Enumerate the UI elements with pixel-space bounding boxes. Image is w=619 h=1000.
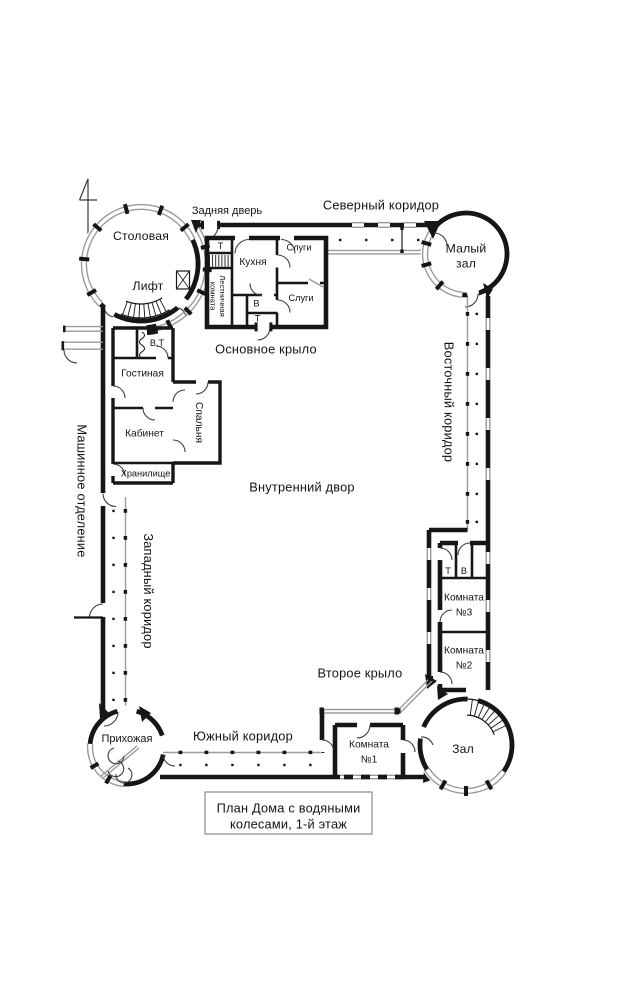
label-wc: В.Т bbox=[150, 338, 165, 348]
label-stair-room-1: Лестничная bbox=[218, 275, 227, 316]
label-room2-1: Комната bbox=[444, 646, 484, 657]
label-hall: Зал bbox=[452, 742, 474, 756]
east-wing-block: Т В Комната №3 Комната №2 bbox=[425, 530, 489, 700]
label-toilet-2: Т bbox=[255, 314, 261, 324]
west-corridor: Западный коридор bbox=[112, 497, 156, 706]
label-office: Кабинет bbox=[125, 428, 164, 440]
label-stair-room-2: комната bbox=[209, 282, 218, 311]
label-dining-room: Столовая bbox=[113, 229, 169, 243]
plan-title-line1: План Дома с водяными bbox=[217, 801, 361, 816]
south-corridor: Южный коридор bbox=[160, 729, 434, 784]
label-servants-top: Слуги bbox=[286, 243, 311, 253]
north-corridor: Задняя дверь Северный коридор bbox=[192, 198, 439, 254]
label-room3-1: Комната bbox=[444, 593, 484, 604]
label-living-room: Гостиная bbox=[121, 369, 164, 380]
rotunda-dining: Столовая Лифт bbox=[79, 204, 212, 332]
main-wing-block: Т Лестничная комната Кухня Слуги Слуги В… bbox=[207, 234, 326, 341]
rotunda-entry: Прихожая bbox=[88, 703, 175, 786]
label-room2-2: №2 bbox=[456, 661, 473, 672]
label-toilet-1: Т bbox=[218, 241, 224, 251]
plan-title-line2: колесами, 1-й этаж bbox=[230, 817, 347, 832]
label-west-corridor: Западный коридор bbox=[141, 533, 156, 648]
floor-plan: Столовая Лифт Задняя дверь Северный кори… bbox=[0, 0, 619, 1000]
label-east-corridor: Восточный коридор bbox=[442, 342, 457, 462]
label-servants-bottom: Слуги bbox=[288, 293, 313, 303]
label-north-corridor: Северный коридор bbox=[323, 198, 439, 213]
label-east-toilet: Т bbox=[445, 566, 451, 576]
curved-stair-hall bbox=[467, 699, 509, 735]
rotunda-small-hall: Малый зал bbox=[422, 213, 507, 307]
rotunda-hall: Зал bbox=[420, 699, 512, 796]
label-room3-2: №3 bbox=[456, 608, 473, 619]
label-lift: Лифт bbox=[133, 279, 164, 293]
label-room1-2: №1 bbox=[361, 755, 378, 766]
title-box: План Дома с водяными колесами, 1-й этаж bbox=[205, 792, 372, 834]
label-small-hall-2: зал bbox=[456, 257, 476, 271]
lift-shaft bbox=[177, 271, 190, 289]
floor-plan-page: Столовая Лифт Задняя дверь Северный кори… bbox=[0, 0, 619, 1000]
room-1: Комната №1 bbox=[335, 721, 415, 778]
stair-hatch bbox=[210, 255, 229, 267]
label-courtyard: Внутренний двор bbox=[249, 480, 354, 495]
label-room1-1: Комната bbox=[349, 740, 389, 751]
label-back-door: Задняя дверь bbox=[192, 205, 263, 217]
label-second-wing: Второе крыло bbox=[318, 666, 403, 681]
label-small-hall-1: Малый bbox=[446, 242, 487, 256]
label-main-wing: Основное крыло bbox=[215, 342, 317, 357]
label-machine-room: Машинное отделение bbox=[75, 424, 90, 557]
label-bedroom: Спальня bbox=[193, 402, 204, 443]
label-kitchen: Кухня bbox=[239, 257, 266, 268]
label-storage: Хранилище bbox=[121, 469, 171, 479]
label-entry-hall: Прихожая bbox=[102, 733, 153, 745]
label-south-corridor: Южный коридор bbox=[193, 729, 293, 744]
label-east-bath: В bbox=[461, 566, 467, 576]
label-bath: В bbox=[253, 299, 259, 309]
